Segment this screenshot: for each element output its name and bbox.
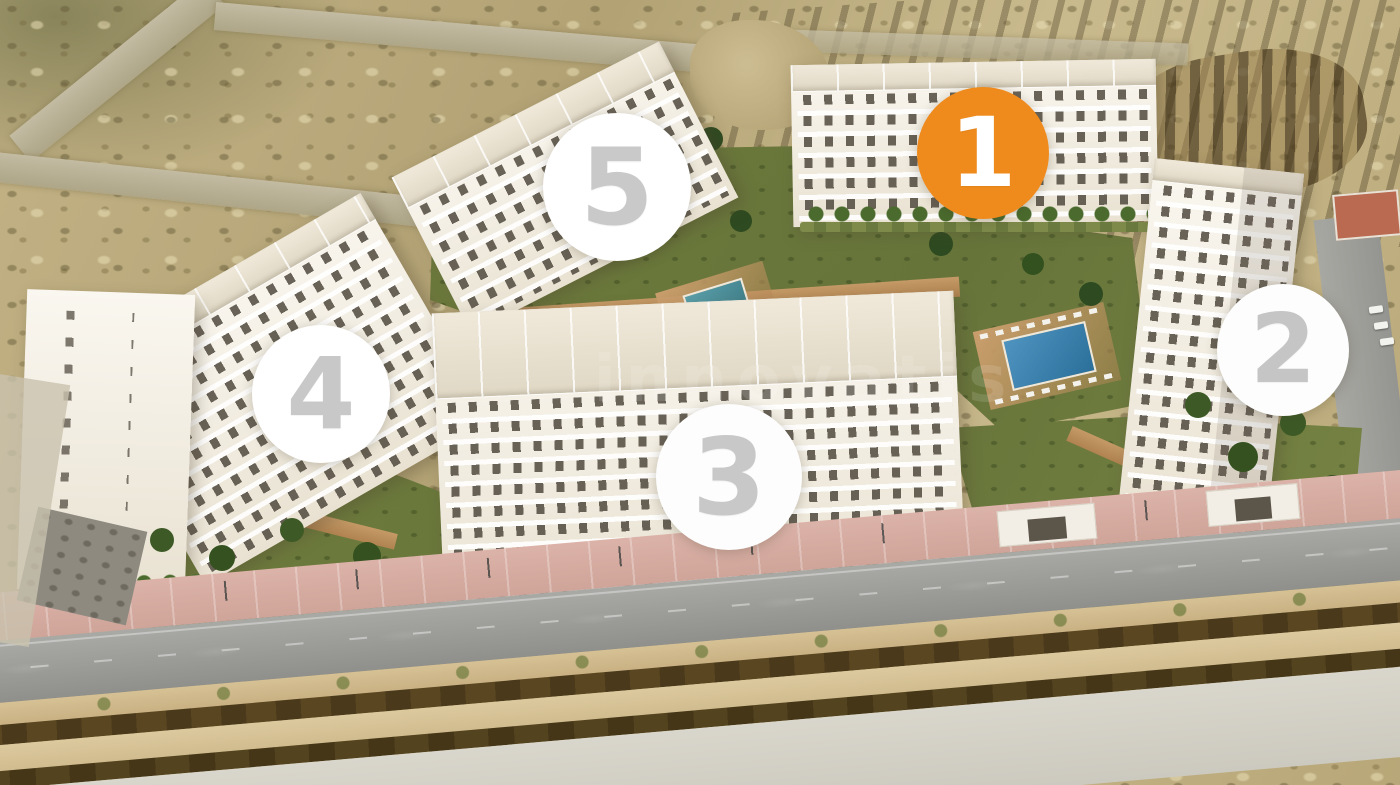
- phase-badge-4-number: 4: [287, 337, 356, 452]
- phase-badge-3[interactable]: 3: [656, 404, 802, 550]
- watermark: innovatis: [545, 348, 1065, 412]
- palm-trees: [730, 210, 752, 232]
- phase-badge-1-number: 1: [950, 97, 1017, 209]
- garden-trees-left: [150, 528, 174, 552]
- phase-badge-3-number: 3: [692, 416, 766, 539]
- phase-badge-4[interactable]: 4: [252, 325, 390, 463]
- phase-badge-1[interactable]: 1: [917, 87, 1049, 219]
- phase-badge-5[interactable]: 5: [543, 113, 691, 261]
- phase-badge-5-number: 5: [580, 126, 654, 249]
- phase-badge-2-number: 2: [1250, 295, 1316, 405]
- garden-trees-right: [1185, 392, 1211, 418]
- phase-badge-2[interactable]: 2: [1217, 284, 1349, 416]
- aerial-development-render: innovatis 1 2 3 4 5: [0, 0, 1400, 785]
- neighbour-building-red-roof: [1332, 189, 1400, 241]
- hedge-strip: [800, 222, 1150, 232]
